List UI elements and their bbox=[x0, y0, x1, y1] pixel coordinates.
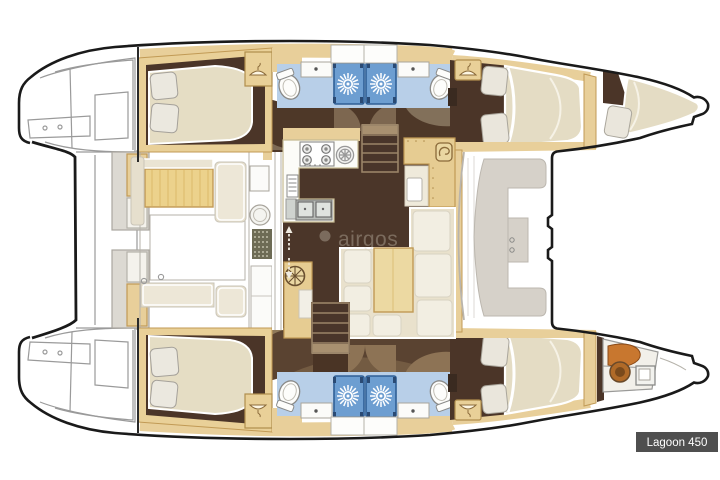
svg-text:Lagoon 450: Lagoon 450 bbox=[647, 437, 708, 449]
svg-text:airgos: airgos bbox=[338, 228, 398, 251]
